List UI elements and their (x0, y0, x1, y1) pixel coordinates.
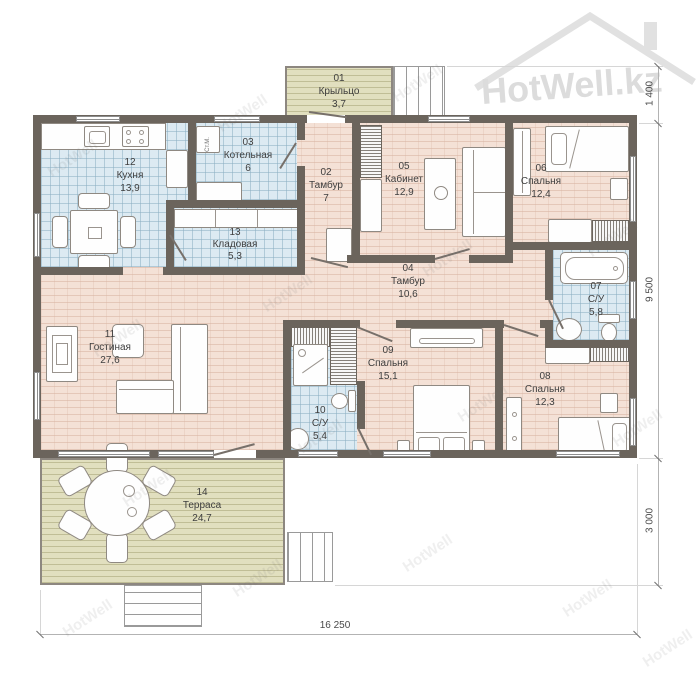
window (158, 451, 214, 457)
burner-icon (126, 139, 131, 144)
watermark-text: HotWell (400, 531, 456, 576)
closet-cabinet (548, 219, 592, 243)
window (630, 156, 636, 222)
terrace-steps-south (124, 585, 202, 627)
extension-line (40, 590, 41, 634)
room-area: 13,9 (85, 182, 175, 195)
burner-icon (139, 139, 144, 144)
shelf-divider (215, 210, 216, 227)
room-label-terrace: 14 Терраса 24,7 (157, 486, 247, 525)
room-label-bath07: 07 С/У 5,8 (551, 280, 641, 319)
room-area: 12,3 (500, 396, 590, 409)
room-name: Кухня (85, 169, 175, 182)
sofa-seat-line (119, 389, 173, 390)
dimension-right-top: 1 400 (645, 72, 656, 116)
burner-icon (126, 130, 131, 135)
room-number: 05 (359, 160, 449, 173)
wall (283, 320, 360, 328)
room-label-living: 11 Гостиная 27,6 (65, 328, 155, 367)
room-name: Спальня (343, 357, 433, 370)
room-number: 01 (294, 72, 384, 85)
blanket-line (416, 432, 467, 433)
shower (293, 344, 328, 386)
window (34, 213, 40, 257)
room-number: 12 (85, 156, 175, 169)
window (76, 116, 120, 122)
room-area: 12,4 (496, 188, 586, 201)
shower-head-icon (298, 349, 306, 357)
room-label-hall04: 04 Тамбур 10,6 (363, 262, 453, 301)
window (214, 116, 260, 122)
room-area: 5,3 (190, 251, 280, 263)
sofa-seat-line (180, 327, 181, 411)
room-number: 10 (275, 404, 365, 417)
tub-drain-icon (613, 266, 618, 271)
room-label-bedroom06: 06 Спальня 12,4 (496, 162, 586, 201)
extension-line (335, 585, 663, 586)
room-name: Спальня (496, 175, 586, 188)
kitchen-stove (122, 126, 149, 147)
dimension-right-middle: 9 500 (645, 268, 656, 312)
wall (188, 123, 196, 200)
room-number: 04 (363, 262, 453, 275)
terrace-steps-east (287, 532, 333, 582)
floor-plan-canvas: HotWell.kz Ст.М. (0, 0, 700, 677)
wall (545, 340, 637, 348)
wall (396, 320, 504, 328)
chair (106, 533, 128, 563)
wall (540, 320, 553, 328)
room-number: 13 (190, 227, 280, 239)
dimension-line-right (658, 66, 659, 585)
room-area: 24,7 (157, 512, 247, 525)
room-number: 07 (551, 280, 641, 293)
burner-icon (139, 130, 144, 135)
room-area: 3,7 (294, 98, 384, 111)
room-label-pantry: 13 Кладовая 5,3 (190, 227, 280, 263)
extension-line (447, 66, 663, 67)
window (556, 451, 620, 457)
shelf-knob (512, 436, 517, 441)
room-label-bath10: 10 С/У 5,4 (275, 404, 365, 443)
dimension-right-bottom: 3 000 (645, 499, 656, 543)
window (428, 116, 470, 122)
room-name: Спальня (500, 383, 590, 396)
room-area: 6 (203, 162, 293, 175)
nightstand (610, 178, 628, 200)
window (383, 451, 431, 457)
bed-double (413, 385, 470, 458)
extension-line (637, 464, 638, 634)
sink-basin (89, 131, 106, 144)
dimension-line-bottom (40, 634, 637, 635)
chair (78, 193, 110, 209)
room-area: 15,1 (343, 370, 433, 383)
window (34, 372, 40, 420)
room-area: 10,6 (363, 288, 453, 301)
closet-rail-hatched (592, 220, 629, 242)
nightstand (600, 393, 618, 413)
room-name: С/У (275, 417, 365, 430)
room-name: Котельная (203, 149, 293, 162)
room-area: 5,4 (275, 430, 365, 443)
room-name: Кладовая (190, 239, 280, 251)
room-label-kitchen: 12 Кухня 13,9 (85, 156, 175, 195)
room-number: 03 (203, 136, 293, 149)
shelf-knob (512, 412, 517, 417)
logo-chimney-icon (644, 22, 657, 50)
room-number: 08 (500, 370, 590, 383)
dining-table (70, 210, 118, 254)
table-decor (127, 507, 137, 517)
room-number: 11 (65, 328, 155, 341)
pillow (612, 423, 627, 453)
wall (33, 267, 123, 275)
room-number: 09 (343, 344, 433, 357)
room-area: 7 (281, 192, 371, 205)
chair (120, 216, 136, 248)
window (58, 451, 150, 457)
room-number: 06 (496, 162, 586, 175)
room-label-bedroom08: 08 Спальня 12,3 (500, 370, 590, 409)
room-name: Терраса (157, 499, 247, 512)
window (298, 451, 338, 457)
room-name: Кабинет (359, 173, 449, 186)
table-decor (123, 485, 135, 497)
watermark-text: HotWell (640, 626, 696, 671)
room-number: 14 (157, 486, 247, 499)
chair (52, 216, 68, 248)
room-label-porch: 01 Крыльцо 3,7 (294, 72, 384, 111)
room-label-boiler: 03 Котельная 6 (203, 136, 293, 175)
room-name: Тамбур (281, 179, 371, 192)
room-label-bedroom09: 09 Спальня 15,1 (343, 344, 433, 383)
hotwell-logo: HotWell.kz (468, 0, 700, 118)
window (630, 398, 636, 446)
kitchen-sink (84, 126, 110, 147)
wall (297, 123, 305, 140)
room-label-tambour02: 02 Тамбур 7 (281, 166, 371, 205)
room-area: 5,8 (551, 306, 641, 319)
room-name: С/У (551, 293, 641, 306)
room-name: Крыльцо (294, 85, 384, 98)
dimension-bottom: 16 250 (300, 620, 370, 631)
table-center (88, 227, 102, 239)
wall (163, 267, 305, 275)
room-label-office: 05 Кабинет 12,9 (359, 160, 449, 199)
chair (106, 443, 128, 473)
room-name: Гостиная (65, 341, 155, 354)
porch-steps (393, 66, 445, 116)
pillow (551, 133, 567, 165)
wall (505, 242, 637, 250)
shelf-divider (257, 210, 258, 227)
terrace-table (84, 470, 150, 536)
shower-diagonal (302, 358, 324, 374)
sofa-l-horizontal (116, 380, 174, 414)
room-number: 02 (281, 166, 371, 179)
pantry-shelf (174, 209, 298, 228)
watermark-text: HotWell (560, 576, 616, 621)
sofa-l-vertical (171, 324, 208, 414)
room-area: 12,9 (359, 186, 449, 199)
room-area: 27,6 (65, 354, 155, 367)
room-name: Тамбур (363, 275, 453, 288)
